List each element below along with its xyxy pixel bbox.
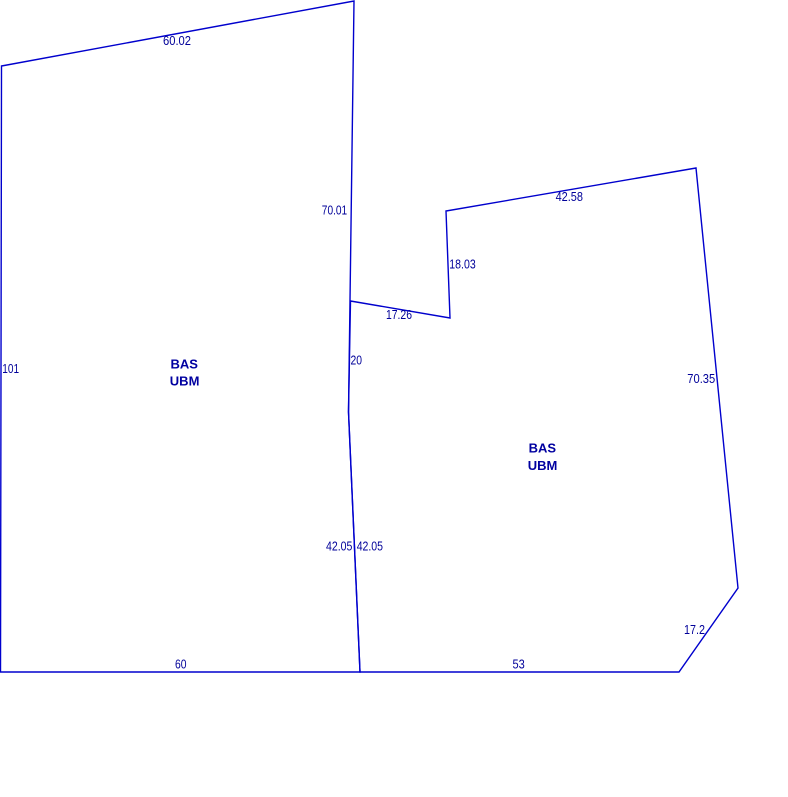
svg-text:70.35: 70.35 (687, 371, 715, 386)
svg-text:42.05: 42.05 (357, 539, 383, 554)
svg-text:70.01: 70.01 (322, 203, 347, 218)
svg-text:53: 53 (513, 657, 525, 672)
svg-text:42.58: 42.58 (556, 189, 583, 204)
svg-text:101: 101 (2, 361, 19, 376)
svg-text:60: 60 (175, 657, 187, 672)
svg-text:18.03: 18.03 (449, 257, 475, 272)
svg-text:BAS: BAS (171, 357, 199, 372)
svg-text:60.02: 60.02 (163, 33, 191, 48)
svg-text:17.26: 17.26 (386, 307, 412, 322)
svg-text:42.05: 42.05 (326, 539, 352, 554)
svg-text:20: 20 (351, 353, 363, 368)
svg-text:UBM: UBM (528, 458, 558, 473)
svg-text:UBM: UBM (170, 374, 200, 389)
svg-text:17.2: 17.2 (684, 622, 705, 637)
svg-text:BAS: BAS (529, 441, 557, 456)
